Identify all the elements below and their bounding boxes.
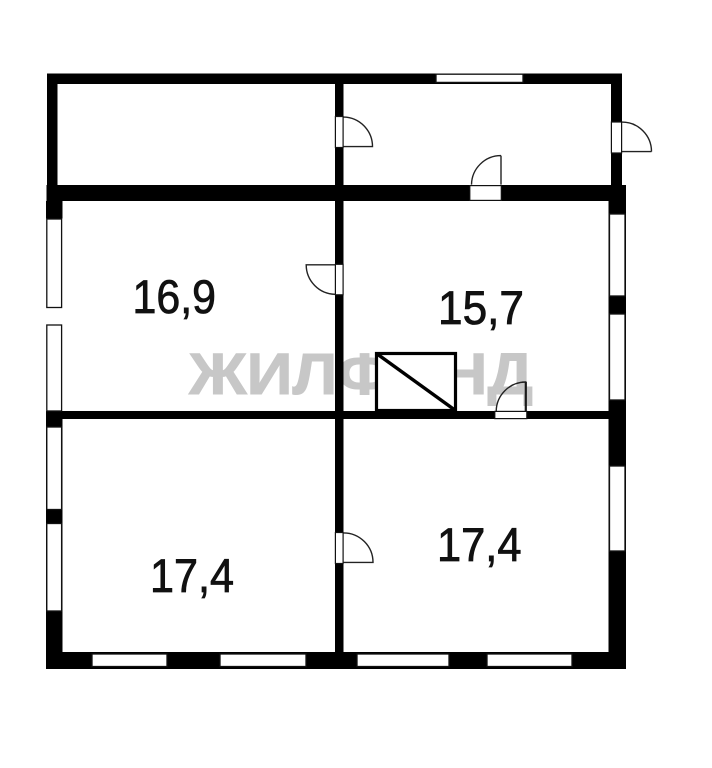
svg-text:17,4: 17,4 [437, 518, 522, 571]
svg-text:16,9: 16,9 [133, 270, 217, 323]
svg-text:ЖИЛФОНД: ЖИЛФОНД [188, 342, 533, 407]
svg-text:17,4: 17,4 [150, 549, 234, 602]
svg-text:15,7: 15,7 [438, 281, 524, 334]
